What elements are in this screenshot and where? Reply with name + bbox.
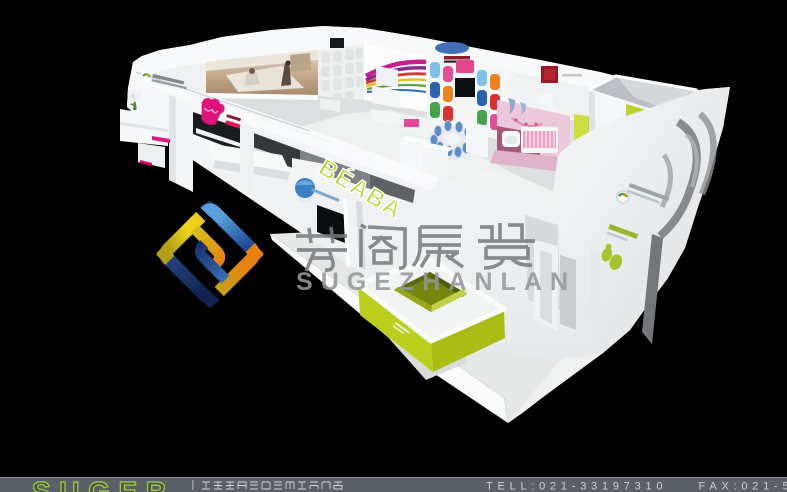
svg-text:SUGER: SUGER	[32, 476, 168, 492]
svg-text:SUGEZHANLAN: SUGEZHANLAN	[296, 268, 568, 296]
svg-text:TELL:021-33197310 FAX:021-5: TELL:021-33197310 FAX:021-5	[486, 481, 787, 492]
